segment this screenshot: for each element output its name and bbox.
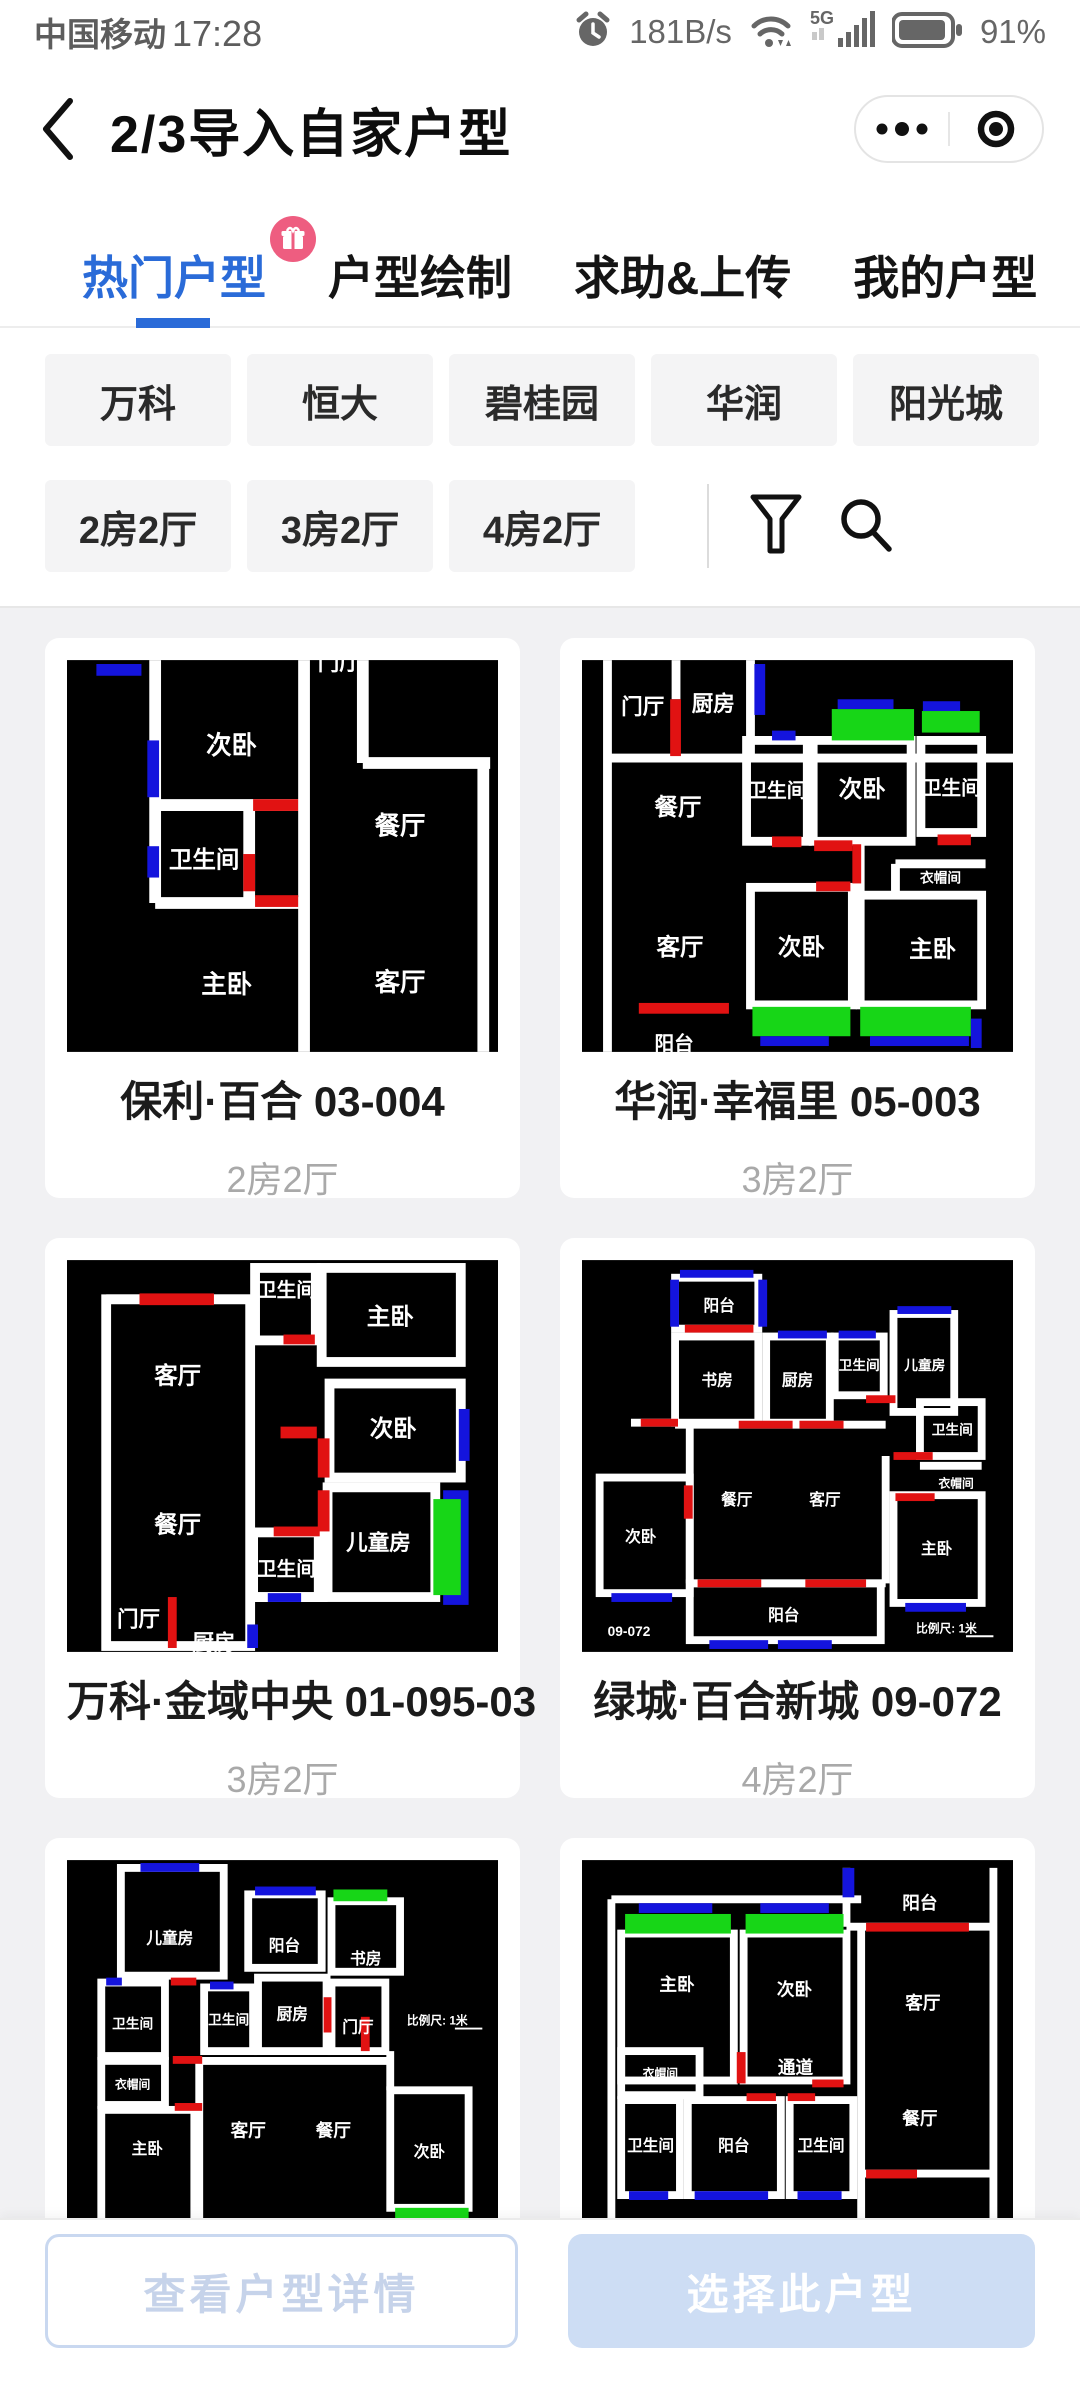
card-title: 保利·百合 03-004 (67, 1068, 498, 1129)
view-details-button[interactable]: 查看户型详情 (45, 2234, 518, 2348)
room-label: 阳台 (269, 1936, 300, 1955)
tools-divider (707, 484, 709, 568)
room-label: 门厅 (621, 694, 664, 719)
room-label: 次卧 (370, 1415, 417, 1441)
chip-brand-huarun[interactable]: 华润 (651, 354, 837, 446)
room-label: 衣帽间 (920, 869, 961, 885)
floorplan-image: 儿童房 阳台 书房 卫生间 卫生间 厨房 门厅 衣帽间 主卧 客厅 餐厅 次卧 … (67, 1860, 498, 2252)
room-label: 主卧 (132, 2139, 164, 2158)
chip-2room[interactable]: 2房2厅 (45, 480, 231, 572)
room-label: 餐厅 (154, 1511, 201, 1537)
back-icon[interactable] (36, 89, 96, 169)
layout-card-lvcheng[interactable]: 阳台 书房 厨房 卫生间 儿童房 卫生间 衣帽间 餐厅 客厅 次卧 主卧 阳台 … (560, 1238, 1035, 1798)
room-label: 卫生间 (169, 847, 240, 873)
search-icon[interactable] (833, 489, 899, 564)
room-label: 餐厅 (902, 2108, 938, 2129)
room-label: 客厅 (656, 933, 703, 960)
active-tab-indicator (136, 318, 210, 328)
card-subtitle: 2房2厅 (67, 1151, 498, 1203)
floorplan-image: 阳台 主卧 次卧 客厅 衣帽间 通道 卫生间 阳台 卫生间 餐厅 (582, 1860, 1013, 2252)
room-label: 主卧 (367, 1304, 414, 1330)
layout-card-vanke[interactable]: 卫生间 主卧 客厅 次卧 餐厅 儿童房 卫生间 门厅 厨房 万科·金域中央 01… (45, 1238, 520, 1798)
plan-code-label: 09-072 (608, 1624, 651, 1639)
screen: 中国移动 17:28 181B/s (0, 0, 1080, 2400)
room-label: 通道 (778, 2057, 814, 2078)
room-label: 次卧 (625, 1527, 657, 1546)
room-label: 书房 (350, 1949, 381, 1968)
room-label: 次卧 (777, 1978, 813, 1999)
room-label: 书房 (702, 1370, 733, 1389)
room-label: 客厅 (154, 1362, 201, 1389)
floorplan-image: 卫生间 主卧 客厅 次卧 餐厅 儿童房 卫生间 门厅 厨房 (67, 1260, 498, 1652)
status-bar: 中国移动 17:28 181B/s (0, 0, 1080, 58)
room-label: 卫生间 (922, 776, 981, 799)
room-label: 餐厅 (375, 812, 426, 840)
room-label: 卫生间 (112, 2016, 153, 2032)
chip-brand-sunshine[interactable]: 阳光城 (853, 354, 1039, 446)
carrier-label: 中国移动 (34, 8, 166, 56)
room-label: 儿童房 (903, 1357, 945, 1373)
floorplan-image: 阳台 书房 厨房 卫生间 儿童房 卫生间 衣帽间 餐厅 客厅 次卧 主卧 阳台 … (582, 1260, 1013, 1652)
chip-brand-vanke[interactable]: 万科 (45, 354, 231, 446)
room-label: 客厅 (809, 1490, 841, 1509)
room-label: 客厅 (230, 2119, 267, 2140)
room-label: 主卧 (909, 936, 957, 962)
room-label: 次卧 (778, 934, 825, 960)
room-label: 次卧 (206, 732, 257, 760)
room-label: 儿童房 (346, 1530, 411, 1555)
scale-label: 比例尺: 1米 (407, 2014, 468, 2028)
chip-brand-countrygarden[interactable]: 碧桂园 (449, 354, 635, 446)
room-label: 厨房 (192, 1630, 235, 1652)
battery-percent-label: 91% (980, 13, 1046, 51)
room-label: 阳台 (768, 1606, 799, 1625)
battery-icon (892, 11, 964, 54)
tab-label: 热门户型 (82, 252, 266, 304)
page-title: 2/3导入自家户型 (110, 92, 512, 167)
room-label: 卫生间 (627, 2136, 674, 2155)
nav-bar: 2/3导入自家户型 (0, 58, 1080, 200)
header: 中国移动 17:28 181B/s (0, 0, 1080, 608)
room-label: 卫生间 (932, 1421, 973, 1437)
chip-4room[interactable]: 4房2厅 (449, 480, 635, 572)
gift-badge-icon (270, 216, 316, 262)
floorplan-image: 门厅 厨房 卫生间 次卧 卫生间 餐厅 衣帽间 客厅 次卧 主卧 阳台 (582, 660, 1013, 1052)
card-title: 华润·幸福里 05-003 (582, 1068, 1013, 1129)
room-label: 卫生间 (839, 1357, 880, 1373)
room-label: 阳台 (902, 1892, 937, 1913)
room-label: 阳台 (718, 2136, 749, 2155)
layout-card-grid: 门厅 次卧 餐厅 卫生间 主卧 客厅 保利·百合 03-004 2房2厅 (45, 638, 1035, 2398)
cellular-5g-icon: 5G (810, 8, 876, 57)
room-label: 衣帽间 (115, 2077, 150, 2091)
select-layout-button[interactable]: 选择此户型 (568, 2234, 1035, 2348)
room-label: 衣帽间 (939, 1476, 974, 1490)
brand-filter-row: 万科 恒大 碧桂园 华润 阳光城 (45, 354, 1080, 446)
card-subtitle: 3房2厅 (67, 1751, 498, 1803)
card-subtitle: 4房2厅 (582, 1751, 1013, 1803)
filter-tools (707, 484, 899, 568)
room-label: 卫生间 (257, 1558, 316, 1581)
room-label: 门厅 (318, 660, 361, 675)
card-subtitle: 3房2厅 (582, 1151, 1013, 1203)
net-speed-label: 181B/s (629, 13, 732, 51)
alarm-icon (573, 10, 613, 55)
card-title: 万科·金域中央 01-095-03 (67, 1668, 498, 1729)
wifi-icon (748, 10, 794, 55)
room-label: 餐厅 (720, 1490, 753, 1509)
svg-text:5G: 5G (810, 8, 834, 28)
layout-filter-row: 2房2厅 3房2厅 4房2厅 (45, 480, 1080, 572)
bottom-action-bar: 查看户型详情 选择此户型 (0, 2218, 1080, 2400)
room-label: 儿童房 (145, 1928, 193, 1947)
room-label: 主卧 (659, 1973, 695, 1994)
chip-brand-evergrande[interactable]: 恒大 (247, 354, 433, 446)
close-minimize-button[interactable] (950, 97, 1042, 161)
room-label: 卫生间 (208, 2012, 249, 2028)
tab-help-upload[interactable]: 求助&上传 (574, 242, 791, 308)
card-title: 绿城·百合新城 09-072 (582, 1668, 1013, 1729)
clock-time: 17:28 (172, 13, 262, 55)
miniprogram-capsule (854, 95, 1044, 163)
layout-card-huarun[interactable]: 门厅 厨房 卫生间 次卧 卫生间 餐厅 衣帽间 客厅 次卧 主卧 阳台 华润·幸… (560, 638, 1035, 1198)
tab-bar: 热门户型 户型绘制 求助&上传 我的户型 (0, 200, 1080, 328)
room-label: 门厅 (342, 2017, 374, 2036)
room-label: 餐厅 (316, 2119, 352, 2140)
room-label: 阳台 (654, 1032, 693, 1052)
scale-label: 比例尺: 1米 (916, 1621, 977, 1635)
room-label: 厨房 (782, 1370, 813, 1389)
room-label: 卫生间 (257, 1278, 316, 1301)
room-label: 门厅 (117, 1606, 160, 1631)
room-label: 餐厅 (654, 794, 701, 820)
room-label: 客厅 (904, 1992, 941, 2013)
room-label: 次卧 (414, 2142, 446, 2161)
tab-draw-layout[interactable]: 户型绘制 (328, 242, 512, 308)
room-label: 主卧 (921, 1539, 953, 1558)
chip-3room[interactable]: 3房2厅 (247, 480, 433, 572)
room-label: 客厅 (375, 968, 426, 997)
floorplan-image: 门厅 次卧 餐厅 卫生间 主卧 客厅 (67, 660, 498, 1052)
room-label: 卫生间 (748, 779, 807, 802)
filter-funnel-icon[interactable] (745, 489, 807, 564)
tab-hot-layouts[interactable]: 热门户型 (82, 242, 266, 308)
filter-section: 万科 恒大 碧桂园 华润 阳光城 2房2厅 3房2厅 4房2厅 (0, 328, 1080, 608)
room-label: 厨房 (277, 2005, 308, 2024)
tab-my-layouts[interactable]: 我的户型 (853, 242, 1037, 308)
room-label: 主卧 (201, 971, 252, 999)
room-label: 次卧 (839, 776, 886, 802)
floorplan-balconies (433, 1490, 468, 1605)
layout-card-baoli[interactable]: 门厅 次卧 餐厅 卫生间 主卧 客厅 保利·百合 03-004 2房2厅 (45, 638, 520, 1198)
more-menu-button[interactable] (856, 97, 948, 161)
room-label: 厨房 (692, 691, 735, 716)
room-label: 卫生间 (798, 2136, 845, 2155)
room-label: 衣帽间 (643, 2067, 678, 2081)
room-label: 阳台 (703, 1296, 734, 1315)
